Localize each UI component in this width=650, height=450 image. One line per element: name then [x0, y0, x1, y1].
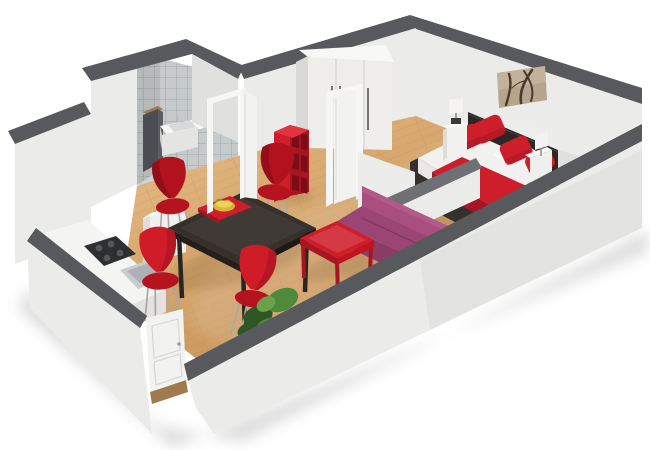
door-handle [177, 342, 181, 346]
floorplan-svg [0, 0, 650, 450]
bedroom-door-leaf [334, 89, 356, 204]
entry-door [146, 309, 188, 404]
bedroom-door [326, 84, 363, 207]
floorplan-render [0, 0, 650, 450]
table-lamp-left [449, 98, 463, 124]
bathroom-west-face [91, 66, 137, 207]
